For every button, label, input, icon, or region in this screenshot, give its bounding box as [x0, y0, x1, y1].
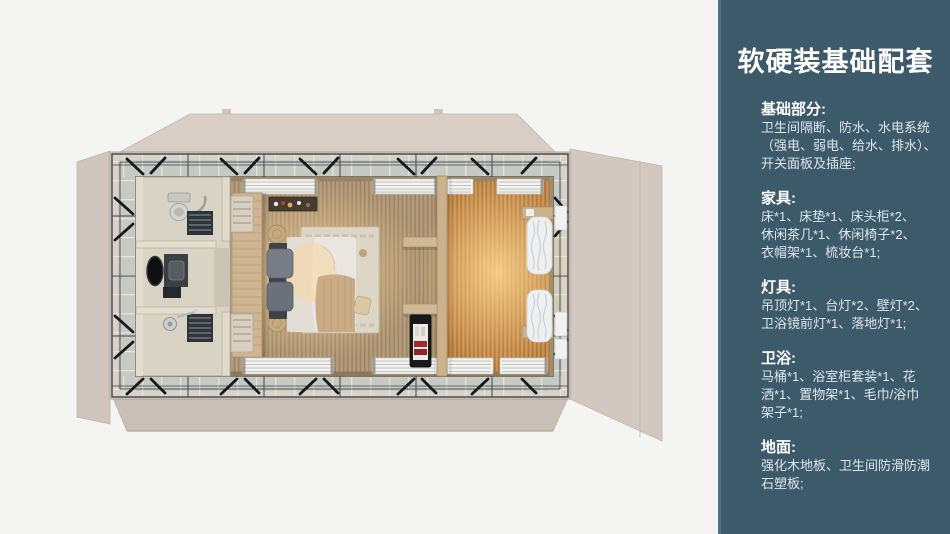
info-panel: 软硬装基础配套 基础部分: 卫生间隔断、防水、水电系统 （强电、弱电、给水、排水…	[718, 0, 950, 534]
panel-title: 软硬装基础配套	[721, 46, 950, 78]
roof-flap-bottom	[113, 398, 568, 431]
towel-radiator-top	[187, 211, 213, 235]
floorplan-render	[0, 0, 718, 534]
section-line: 马桶*1、浴室柜套装*1、花	[761, 368, 942, 386]
section-furniture: 家具: 床*1、床垫*1、床头柜*2、 休闲茶几*1、休闲椅子*2、 衣帽架*1…	[761, 190, 942, 262]
section-bathroom: 卫浴: 马桶*1、浴室柜套装*1、花 洒*1、置物架*1、毛巾/浴巾 架子*1;	[761, 350, 942, 422]
section-heading: 基础部分:	[761, 101, 942, 119]
section-line: 洒*1、置物架*1、毛巾/浴巾	[761, 386, 942, 404]
towel-rack-upper	[231, 196, 253, 232]
towel-radiator-bottom	[187, 314, 213, 342]
section-line: 石塑板;	[761, 475, 942, 493]
section-flooring: 地面: 强化木地板、卫生间防滑防潮 石塑板;	[761, 439, 942, 493]
section-line: 休闲茶几*1、休闲椅子*2、	[761, 226, 942, 244]
roof-flap-left	[77, 151, 110, 424]
bathroom-right-wall-bottom	[222, 312, 230, 376]
curtain-upper	[527, 217, 552, 274]
section-line: （强电、弱电、给水、排水）、	[761, 137, 942, 155]
section-line: 床*1、床垫*1、床头柜*2、	[761, 208, 942, 226]
section-heading: 家具:	[761, 190, 942, 208]
roof-flap-right	[570, 149, 662, 441]
blind-group	[243, 179, 317, 194]
bathroom-niche	[214, 248, 230, 307]
curtain-lower	[527, 290, 552, 342]
minibar-fridge	[410, 315, 431, 367]
round-rug-top	[268, 225, 286, 243]
window-blinds-bottom	[243, 358, 547, 374]
section-line: 强化木地板、卫生间防滑防潮	[761, 457, 942, 475]
panel-sections: 基础部分: 卫生间隔断、防水、水电系统 （强电、弱电、给水、排水）、 开关面板及…	[721, 101, 950, 493]
section-heading: 卫浴:	[761, 350, 942, 368]
towel-rack-lower	[231, 314, 253, 352]
section-basics: 基础部分: 卫生间隔断、防水、水电系统 （强电、弱电、给水、排水）、 开关面板及…	[761, 101, 942, 173]
blind-group	[373, 179, 437, 194]
section-heading: 灯具:	[761, 279, 942, 297]
slide: 软硬装基础配套 基础部分: 卫生间隔断、防水、水电系统 （强电、弱电、给水、排水…	[0, 0, 950, 534]
section-line: 衣帽架*1、梳妆台*1;	[761, 244, 942, 262]
floorplan-panel	[0, 0, 718, 534]
vanity-mirror	[147, 257, 163, 286]
section-line: 吊顶灯*1、台灯*2、壁灯*2、	[761, 297, 942, 315]
bed-throw	[316, 274, 356, 332]
vanity-stool	[163, 287, 181, 298]
roof-flap-top	[118, 114, 556, 153]
bathroom	[136, 177, 230, 376]
decor-sprig	[359, 249, 367, 257]
window-blinds-top	[243, 179, 543, 194]
bathroom-left-wall	[136, 177, 143, 376]
vanity-sink	[169, 261, 184, 280]
blind-group	[447, 358, 493, 374]
section-line: 卫生间隔断、防水、水电系统	[761, 119, 942, 137]
blind-group	[500, 358, 547, 374]
bathroom-divider-lower	[136, 307, 216, 314]
section-heading: 地面:	[761, 439, 942, 457]
divider-wall	[437, 176, 447, 376]
bathroom-divider-upper	[136, 241, 216, 248]
blind-group	[497, 179, 543, 194]
wall-shelf-decor	[269, 197, 317, 211]
headboard-partition	[231, 193, 267, 357]
section-lighting: 灯具: 吊顶灯*1、台灯*2、壁灯*2、 卫浴镜前灯*1、落地灯*1;	[761, 279, 942, 333]
section-line: 开关面板及插座;	[761, 155, 942, 173]
bathroom-right-wall-top	[222, 177, 230, 241]
blind-group	[243, 358, 333, 374]
section-line: 架子*1;	[761, 404, 942, 422]
section-line: 卫浴镜前灯*1、落地灯*1;	[761, 315, 942, 333]
